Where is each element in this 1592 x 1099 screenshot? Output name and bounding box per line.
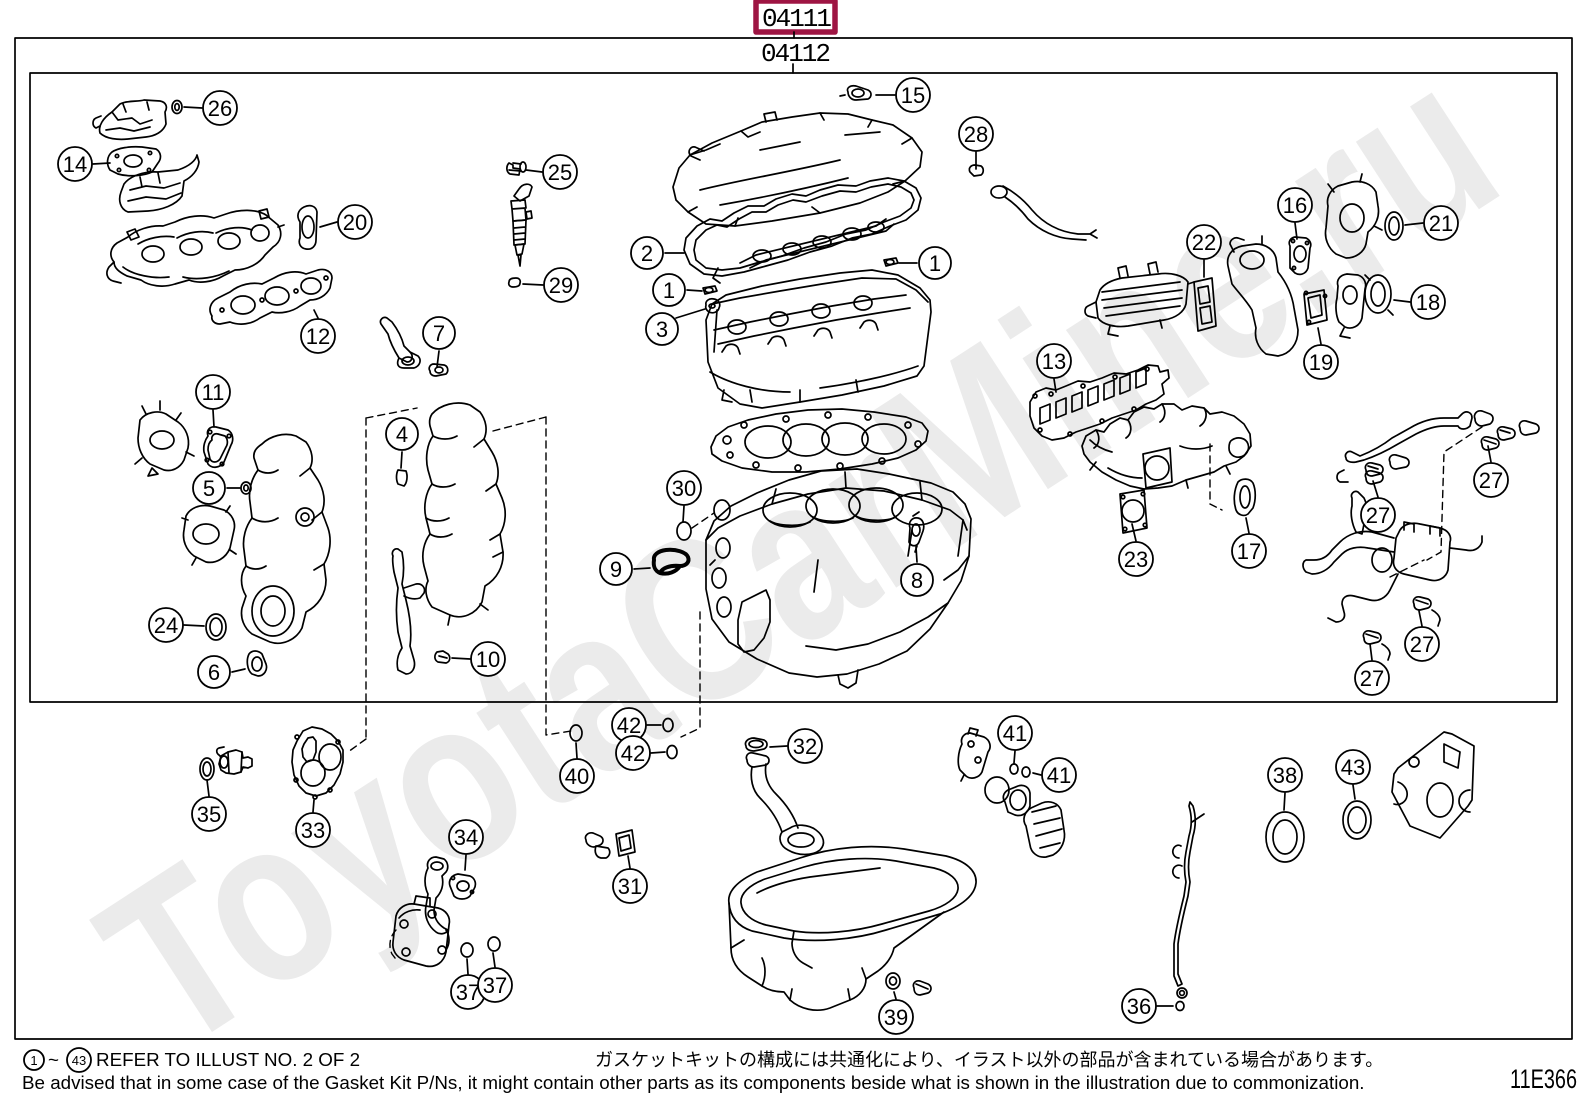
svg-text:27: 27	[1366, 503, 1390, 528]
svg-text:20: 20	[343, 210, 367, 235]
svg-text:ToyotaCarMine.ru: ToyotaCarMine.ru	[60, 11, 1538, 1098]
svg-text:24: 24	[154, 613, 178, 638]
svg-text:27: 27	[1479, 468, 1503, 493]
svg-text:30: 30	[672, 476, 696, 501]
svg-text:43: 43	[1341, 755, 1365, 780]
svg-text:6: 6	[208, 660, 220, 685]
svg-text:39: 39	[884, 1005, 908, 1030]
svg-text:36: 36	[1127, 994, 1151, 1019]
svg-text:33: 33	[301, 818, 325, 843]
svg-text:28: 28	[964, 122, 988, 147]
svg-text:1: 1	[663, 278, 675, 303]
svg-text:22: 22	[1192, 230, 1216, 255]
svg-text:38: 38	[1273, 763, 1297, 788]
svg-text:37: 37	[483, 973, 507, 998]
svg-text:04111: 04111	[762, 4, 831, 34]
svg-text:REFER TO ILLUST NO. 2 OF 2: REFER TO ILLUST NO. 2 OF 2	[96, 1049, 360, 1070]
svg-text:16: 16	[1283, 193, 1307, 218]
svg-text:43: 43	[72, 1053, 86, 1068]
svg-text:1: 1	[30, 1053, 37, 1068]
svg-text:1: 1	[929, 251, 941, 276]
svg-text:14: 14	[63, 152, 87, 177]
svg-text:27: 27	[1410, 632, 1434, 657]
svg-text:42: 42	[617, 713, 641, 738]
svg-text:3: 3	[656, 317, 668, 342]
svg-text:27: 27	[1360, 666, 1384, 691]
svg-text:18: 18	[1416, 290, 1440, 315]
svg-text:34: 34	[454, 825, 478, 850]
svg-text:9: 9	[610, 557, 622, 582]
svg-text:Be advised that in some case o: Be advised that in some case of the Gask…	[22, 1072, 1365, 1093]
svg-text:41: 41	[1003, 721, 1027, 746]
svg-text:19: 19	[1309, 350, 1333, 375]
svg-text:7: 7	[433, 321, 445, 346]
svg-text:23: 23	[1124, 547, 1148, 572]
svg-text:31: 31	[618, 874, 642, 899]
svg-text:17: 17	[1237, 539, 1261, 564]
svg-text:15: 15	[901, 83, 925, 108]
svg-text:21: 21	[1429, 211, 1453, 236]
svg-text:42: 42	[621, 741, 645, 766]
svg-text:35: 35	[197, 802, 221, 827]
svg-text:4: 4	[396, 422, 408, 447]
svg-text:10: 10	[476, 647, 500, 672]
svg-text:37: 37	[456, 980, 480, 1005]
svg-text:8: 8	[911, 568, 923, 593]
svg-text:25: 25	[548, 160, 572, 185]
svg-text:~: ~	[48, 1049, 59, 1070]
svg-text:11E366: 11E366	[1510, 1064, 1577, 1094]
svg-text:04112: 04112	[761, 39, 829, 69]
svg-text:26: 26	[208, 96, 232, 121]
svg-text:5: 5	[203, 476, 215, 501]
svg-text:40: 40	[565, 764, 589, 789]
svg-text:32: 32	[793, 734, 817, 759]
svg-text:13: 13	[1042, 349, 1066, 374]
svg-text:41: 41	[1047, 763, 1071, 788]
svg-text:12: 12	[306, 324, 330, 349]
svg-text:29: 29	[549, 273, 573, 298]
svg-text:ガスケットキットの構成には共通化により、イラスト以外の部品が: ガスケットキットの構成には共通化により、イラスト以外の部品が含まれている場合があ…	[595, 1050, 1383, 1070]
svg-text:11: 11	[202, 380, 225, 405]
svg-text:2: 2	[641, 241, 653, 266]
